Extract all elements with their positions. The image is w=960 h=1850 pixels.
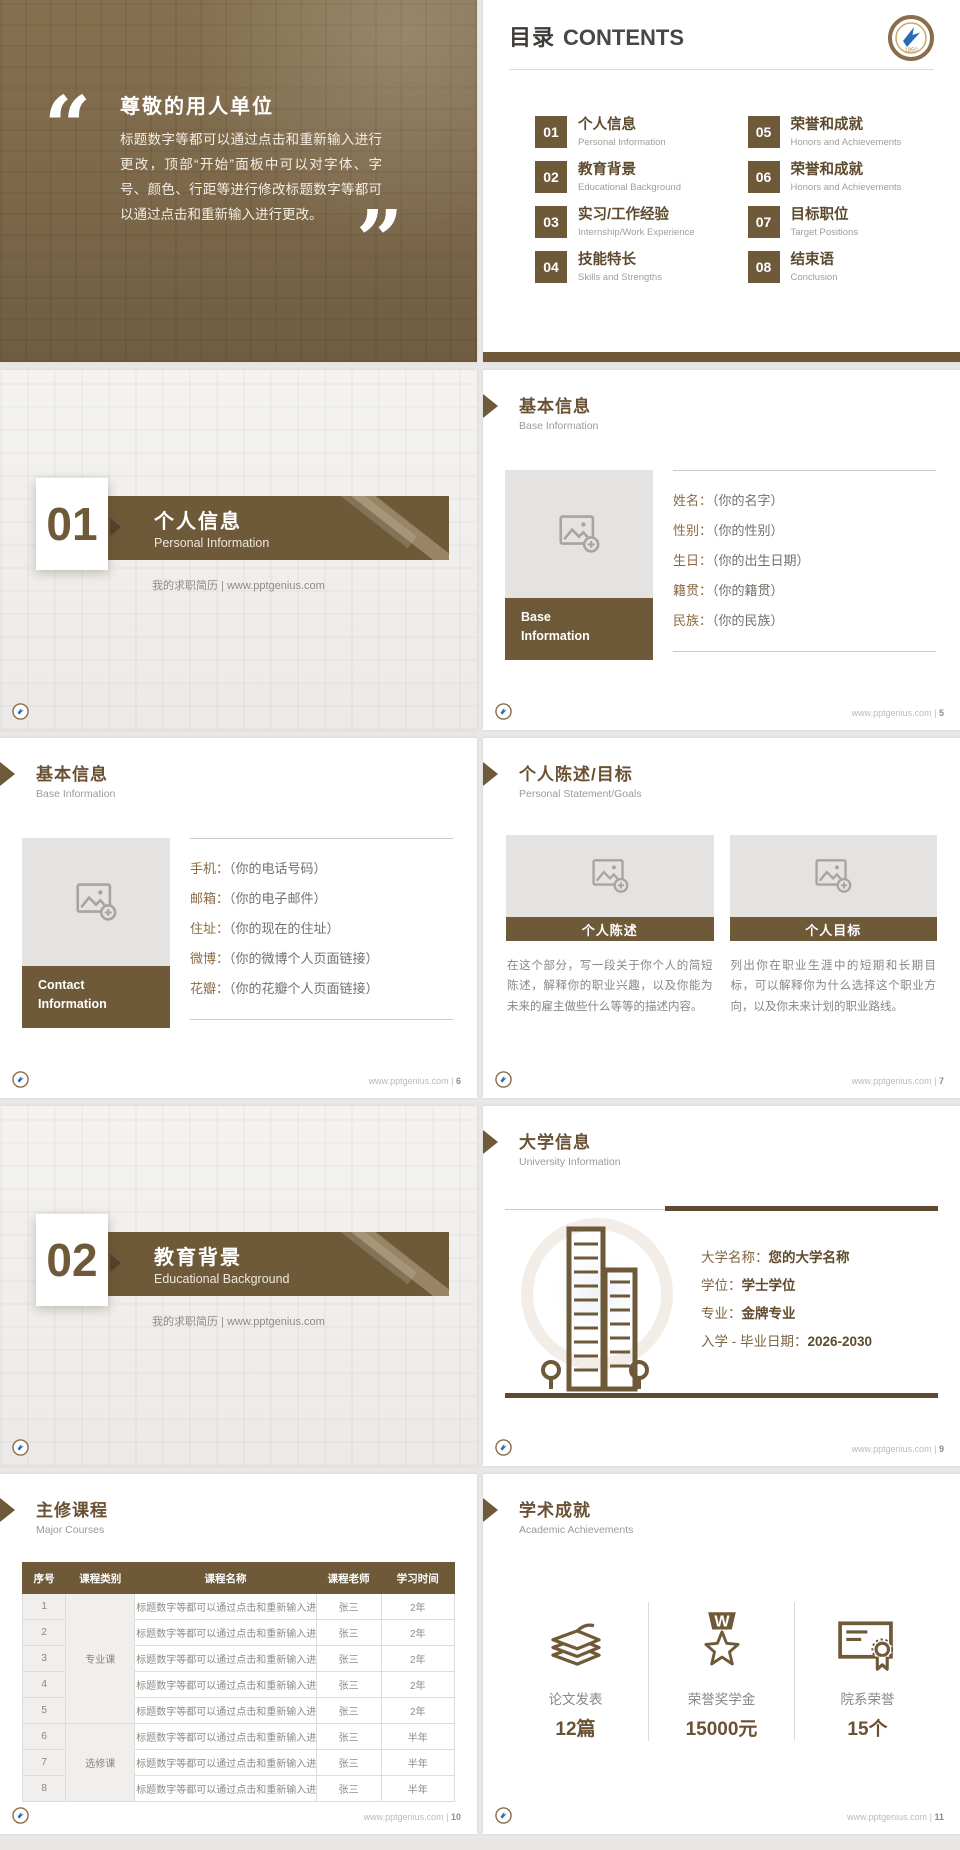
- school-badge-logo: 1950: [888, 15, 934, 61]
- slide-header: 基本信息 Base Information: [0, 760, 115, 800]
- stat-value: 12篇: [503, 1714, 648, 1741]
- school-badge-logo-small: [12, 1071, 29, 1088]
- field-row: 姓名：（你的名字）: [673, 486, 936, 516]
- stat-value: 15个: [795, 1714, 940, 1741]
- statement-panel: 个人陈述 在这个部分，写一段关于你个人的简短陈述，解释你的职业兴趣，以及你能为未…: [506, 835, 714, 1017]
- field-row: 邮箱：（你的电子邮件）: [190, 884, 453, 914]
- section-title-en: Educational Background: [154, 1272, 449, 1286]
- field-row: 籍贯：（你的籍贯）: [673, 576, 936, 606]
- photo-placeholder[interactable]: [730, 835, 938, 917]
- medal-letter: W: [714, 1613, 730, 1631]
- section-number: 01: [36, 478, 108, 570]
- section-title-en: Personal Information: [154, 536, 449, 550]
- panel-text: 列出你在职业生涯中的短期和长期目标，可以解释你为什么选择这个职业方向，以及你未来…: [731, 956, 937, 1017]
- contents-item-01[interactable]: 01个人信息Personal Information: [535, 116, 726, 148]
- header-title-en: Base Information: [36, 788, 115, 800]
- info-fields: 手机：（你的电话号码） 邮箱：（你的电子邮件） 住址：（你的现在的住址） 微博：…: [190, 838, 453, 1020]
- divider: [190, 838, 453, 839]
- slide-header: 学术成就 Academic Achievements: [483, 1496, 633, 1536]
- statement-panel: 个人目标 列出你在职业生涯中的短期和长期目标，可以解释你为什么选择这个职业方向，…: [730, 835, 938, 1017]
- header-title-en: Personal Statement/Goals: [519, 788, 642, 800]
- quote-heading: 尊敬的用人单位: [120, 90, 274, 119]
- arrow-right-icon: [483, 1498, 498, 1522]
- item-title-en: Target Positions: [791, 227, 859, 238]
- header-title-en: University Information: [519, 1156, 621, 1168]
- item-title-en: Honors and Achievements: [791, 182, 902, 193]
- papers-icon: [503, 1606, 648, 1672]
- field-row: 专业：金牌专业: [701, 1300, 872, 1328]
- stat-publications: 论文发表 12篇: [503, 1602, 648, 1741]
- item-title-en: Internship/Work Experience: [578, 227, 695, 238]
- achievement-stats: 论文发表 12篇 W 荣誉奖学金 15000元: [503, 1602, 940, 1741]
- item-number-badge: 07: [748, 206, 780, 238]
- slide-header: 基本信息 Base Information: [483, 392, 598, 432]
- field-row: 性别：（你的性别）: [673, 516, 936, 546]
- contents-title-zh: 目录: [509, 25, 555, 50]
- statement-panels: 个人陈述 在这个部分，写一段关于你个人的简短陈述，解释你的职业兴趣，以及你能为未…: [506, 835, 937, 1017]
- header-title-en: Academic Achievements: [519, 1524, 633, 1536]
- item-number-badge: 06: [748, 161, 780, 193]
- field-row: 手机：（你的电话号码）: [190, 854, 453, 884]
- table-row: 1专业课标题数字等都可以通过点击和重新输入进行更改张三2年: [23, 1594, 455, 1620]
- item-number-badge: 03: [535, 206, 567, 238]
- info-fields: 姓名：（你的名字） 性别：（你的性别） 生日：（你的出生日期） 籍贯：（你的籍贯…: [673, 470, 936, 652]
- item-number-badge: 05: [748, 116, 780, 148]
- row-3: 基本信息 Base Information Contact Informatio…: [0, 738, 960, 1098]
- field-row: 微博：（你的微博个人页面链接）: [190, 944, 453, 974]
- slide-contents-preview[interactable]: 目录CONTENTS 1950 01个人信息Personal Informati…: [483, 0, 960, 362]
- page-number: 10: [451, 1812, 461, 1822]
- image-add-icon: [591, 858, 629, 894]
- page-number: 9: [939, 1444, 944, 1454]
- contents-list: 01个人信息Personal Information 05荣誉和成就Honors…: [535, 116, 938, 283]
- school-badge-logo-small: [12, 1807, 29, 1824]
- school-badge-logo-small: [495, 1807, 512, 1824]
- slide-footer: www.pptgenius.com | 5: [852, 708, 944, 718]
- slide-achievements-preview[interactable]: 学术成就 Academic Achievements 论文发表 12篇: [483, 1474, 960, 1834]
- panel-caption: 个人目标: [730, 917, 938, 941]
- field-row: 学位：学士学位: [701, 1272, 872, 1300]
- contents-item-06[interactable]: 06荣誉和成就Honors and Achievements: [748, 161, 939, 193]
- item-number-badge: 04: [535, 251, 567, 283]
- section-tagline: 我的求职简历 | www.pptgenius.com: [152, 577, 325, 593]
- slide-courses-preview[interactable]: 主修课程 Major Courses 序号 课程类别 课程名称 课程老师 学习时…: [0, 1474, 477, 1834]
- slide-section-01-preview[interactable]: 个人信息 Personal Information 01 我的求职简历 | ww…: [0, 370, 477, 730]
- section-tagline: 我的求职简历 | www.pptgenius.com: [152, 1313, 325, 1329]
- photo-placeholder[interactable]: [506, 835, 714, 917]
- section-number: 02: [36, 1214, 108, 1306]
- header-title-zh: 大学信息: [519, 1128, 621, 1153]
- open-quote-icon: “: [44, 86, 91, 168]
- stat-label: 论文发表: [503, 1688, 648, 1708]
- table-row: 6选修课标题数字等都可以通过点击和重新输入进行更改张三半年: [23, 1724, 455, 1750]
- photo-caption: Base Information: [505, 598, 653, 660]
- header-title-zh: 个人陈述/目标: [519, 760, 642, 785]
- bottom-accent-bar: [483, 352, 960, 362]
- accent-divider: [665, 1206, 938, 1211]
- item-title-zh: 荣誉和成就: [791, 162, 864, 178]
- header-title-zh: 学术成就: [519, 1496, 633, 1521]
- item-title-en: Honors and Achievements: [791, 137, 902, 148]
- arrow-right-icon: [0, 762, 15, 786]
- row-2: 个人信息 Personal Information 01 我的求职简历 | ww…: [0, 370, 960, 730]
- close-quote-icon: ”: [356, 200, 403, 282]
- school-badge-logo-small: [12, 703, 29, 720]
- school-badge-logo-small: [495, 1439, 512, 1456]
- divider: [673, 470, 936, 471]
- chevron-right-icon: [110, 518, 121, 536]
- image-add-icon: [75, 882, 117, 922]
- divider: [505, 1209, 665, 1210]
- field-row: 入学 - 毕业日期：2026-2030: [701, 1328, 872, 1356]
- contents-item-07[interactable]: 07目标职位Target Positions: [748, 206, 939, 238]
- header-title-zh: 主修课程: [36, 1496, 108, 1521]
- slide-contact-info-preview[interactable]: 基本信息 Base Information Contact Informatio…: [0, 738, 477, 1098]
- item-title-zh: 教育背景: [578, 162, 636, 178]
- contents-item-04[interactable]: 04技能特长Skills and Strengths: [535, 251, 726, 283]
- field-row: 住址：（你的现在的住址）: [190, 914, 453, 944]
- field-row: 民族：（你的民族）: [673, 606, 936, 636]
- contents-item-02[interactable]: 02教育背景Educational Background: [535, 161, 726, 193]
- item-title-zh: 实习/工作经验: [578, 207, 669, 223]
- slide-footer: www.pptgenius.com | 9: [852, 1444, 944, 1454]
- header-title-en: Major Courses: [36, 1524, 108, 1536]
- slide-quote-preview[interactable]: “ 尊敬的用人单位 标题数字等都可以通过点击和重新输入进行更改，顶部“开始”面板…: [0, 0, 477, 362]
- divider: [509, 69, 934, 70]
- stat-label: 院系荣誉: [795, 1688, 940, 1708]
- panel-text: 在这个部分，写一段关于你个人的简短陈述，解释你的职业兴趣，以及你能为未来的雇主做…: [507, 956, 713, 1017]
- arrow-right-icon: [0, 1498, 15, 1522]
- divider: [190, 1019, 453, 1020]
- arrow-right-icon: [483, 762, 498, 786]
- item-number-badge: 01: [535, 116, 567, 148]
- section-title-zh: 教育背景: [154, 1241, 449, 1270]
- stat-honors: 院系荣誉 15个: [794, 1602, 940, 1741]
- page-number: 5: [939, 708, 944, 718]
- slide-base-info-preview[interactable]: 基本信息 Base Information Base Information 姓…: [483, 370, 960, 730]
- row-4: 教育背景 Educational Background 02 我的求职简历 | …: [0, 1106, 960, 1466]
- slide-footer: www.pptgenius.com | 10: [364, 1812, 461, 1822]
- slide-header: 大学信息 University Information: [483, 1128, 621, 1168]
- contents-item-08[interactable]: 08结束语Conclusion: [748, 251, 939, 283]
- page-number: 7: [939, 1076, 944, 1086]
- stat-label: 荣誉奖学金: [649, 1688, 794, 1708]
- courses-table: 序号 课程类别 课程名称 课程老师 学习时间 1专业课标题数字等都可以通过点击和…: [22, 1562, 455, 1802]
- item-title-zh: 结束语: [791, 252, 835, 268]
- slide-footer: www.pptgenius.com | 11: [847, 1812, 944, 1822]
- course-category-cell: 选修课: [66, 1724, 135, 1802]
- school-badge-logo-small: [12, 1439, 29, 1456]
- slide-statement-preview[interactable]: 个人陈述/目标 Personal Statement/Goals 个人陈述 在这…: [483, 738, 960, 1098]
- header-title-zh: 基本信息: [519, 392, 598, 417]
- page-number: 11: [934, 1812, 944, 1822]
- photo-placeholder[interactable]: [505, 470, 653, 598]
- stat-scholarship: W 荣誉奖学金 15000元: [648, 1602, 794, 1741]
- field-row: 花瓣：（你的花瓣个人页面链接）: [190, 974, 453, 1004]
- photo-caption: Contact Information: [22, 966, 170, 1028]
- school-badge-logo-small: [495, 1071, 512, 1088]
- field-row: 生日：（你的出生日期）: [673, 546, 936, 576]
- contents-title: 目录CONTENTS: [509, 20, 684, 52]
- slide-header: 主修课程 Major Courses: [0, 1496, 108, 1536]
- item-number-badge: 02: [535, 161, 567, 193]
- item-title-en: Personal Information: [578, 137, 666, 148]
- badge-year: 1950: [904, 48, 918, 54]
- arrow-right-icon: [483, 1130, 498, 1154]
- page-number: 6: [456, 1076, 461, 1086]
- header-title-en: Base Information: [519, 420, 598, 432]
- chevron-right-icon: [110, 1254, 121, 1272]
- slide-section-02-preview[interactable]: 教育背景 Educational Background 02 我的求职简历 | …: [0, 1106, 477, 1466]
- row-5: 主修课程 Major Courses 序号 课程类别 课程名称 课程老师 学习时…: [0, 1474, 960, 1834]
- contents-title-en: CONTENTS: [563, 25, 684, 50]
- slide-footer: www.pptgenius.com | 6: [369, 1076, 461, 1086]
- contents-item-05[interactable]: 05荣誉和成就Honors and Achievements: [748, 116, 939, 148]
- section-title-zh: 个人信息: [154, 505, 449, 534]
- course-category-cell: 专业课: [66, 1594, 135, 1724]
- panel-caption: 个人陈述: [506, 917, 714, 941]
- accent-divider: [505, 1393, 938, 1398]
- item-title-en: Conclusion: [791, 272, 838, 283]
- item-title-en: Educational Background: [578, 182, 681, 193]
- photo-placeholder[interactable]: [22, 838, 170, 966]
- medal-icon: W: [649, 1606, 794, 1672]
- image-add-icon: [558, 514, 600, 554]
- arrow-right-icon: [483, 394, 498, 418]
- university-fields: 大学名称：您的大学名称 学位：学士学位 专业：金牌专业 入学 - 毕业日期：20…: [701, 1244, 872, 1356]
- contents-item-03[interactable]: 03实习/工作经验Internship/Work Experience: [535, 206, 726, 238]
- image-add-icon: [814, 858, 852, 894]
- row-1: “ 尊敬的用人单位 标题数字等都可以通过点击和重新输入进行更改，顶部“开始”面板…: [0, 0, 960, 362]
- item-title-zh: 荣誉和成就: [791, 117, 864, 133]
- table-header-row: 序号 课程类别 课程名称 课程老师 学习时间: [23, 1563, 455, 1594]
- divider: [673, 651, 936, 652]
- field-row: 大学名称：您的大学名称: [701, 1244, 872, 1272]
- item-title-en: Skills and Strengths: [578, 272, 662, 283]
- university-building-icon: [539, 1224, 651, 1394]
- item-title-zh: 个人信息: [578, 117, 636, 133]
- item-title-zh: 技能特长: [578, 252, 636, 268]
- school-badge-logo-small: [495, 703, 512, 720]
- item-title-zh: 目标职位: [791, 207, 849, 223]
- stat-value: 15000元: [649, 1714, 794, 1741]
- slide-footer: www.pptgenius.com | 7: [852, 1076, 944, 1086]
- quote-body: 标题数字等都可以通过点击和重新输入进行更改，顶部“开始”面板中可以对字体、字号、…: [120, 128, 382, 228]
- slide-university-preview[interactable]: 大学信息 University Information 大学名称：您的大学名称 …: [483, 1106, 960, 1466]
- certificate-icon: [795, 1606, 940, 1672]
- slide-header: 个人陈述/目标 Personal Statement/Goals: [483, 760, 642, 800]
- header-title-zh: 基本信息: [36, 760, 115, 785]
- item-number-badge: 08: [748, 251, 780, 283]
